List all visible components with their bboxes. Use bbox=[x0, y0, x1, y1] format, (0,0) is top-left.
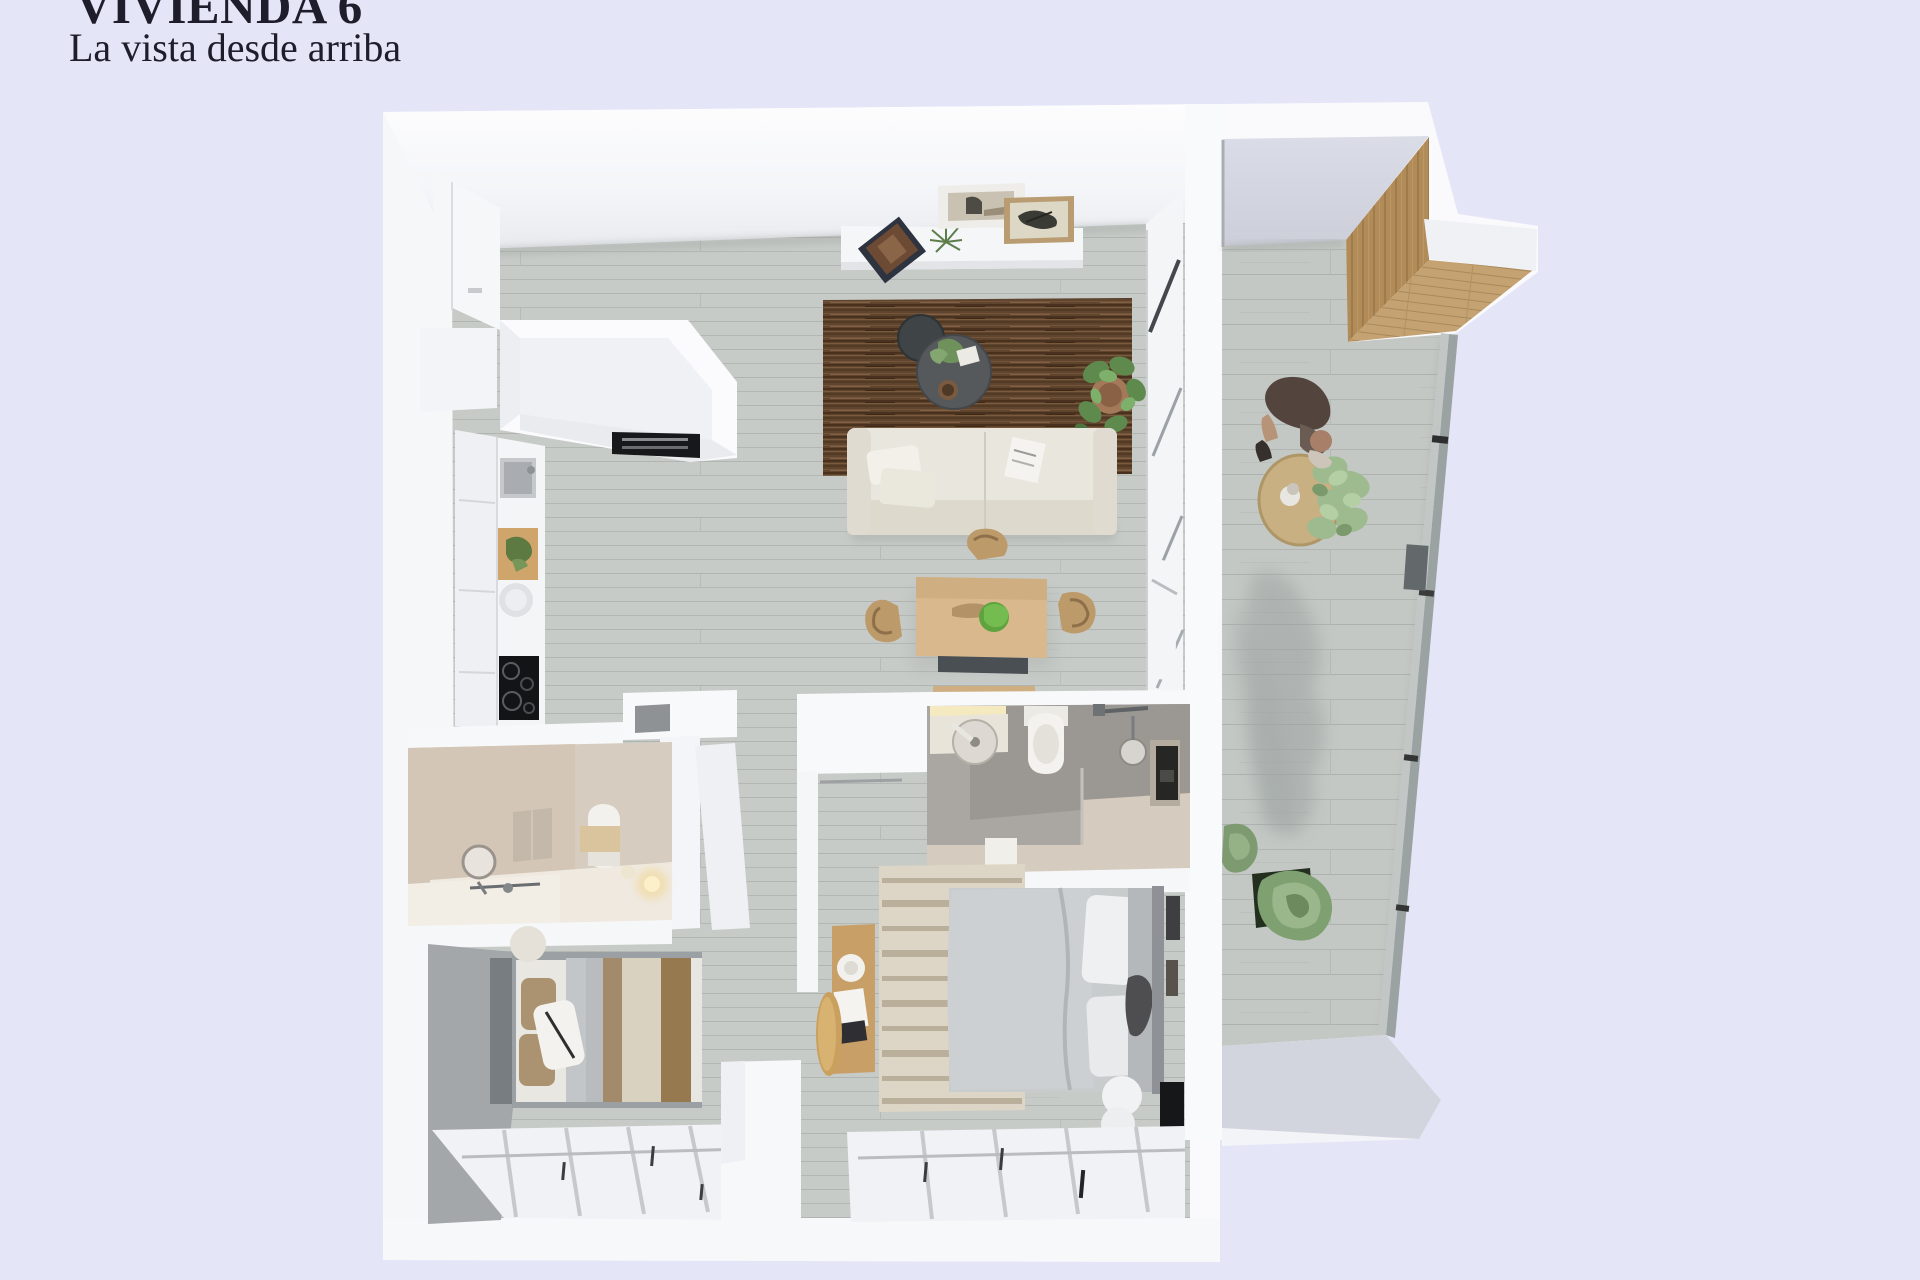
svg-text:La vista desde arriba: La vista desde arriba bbox=[69, 25, 401, 70]
